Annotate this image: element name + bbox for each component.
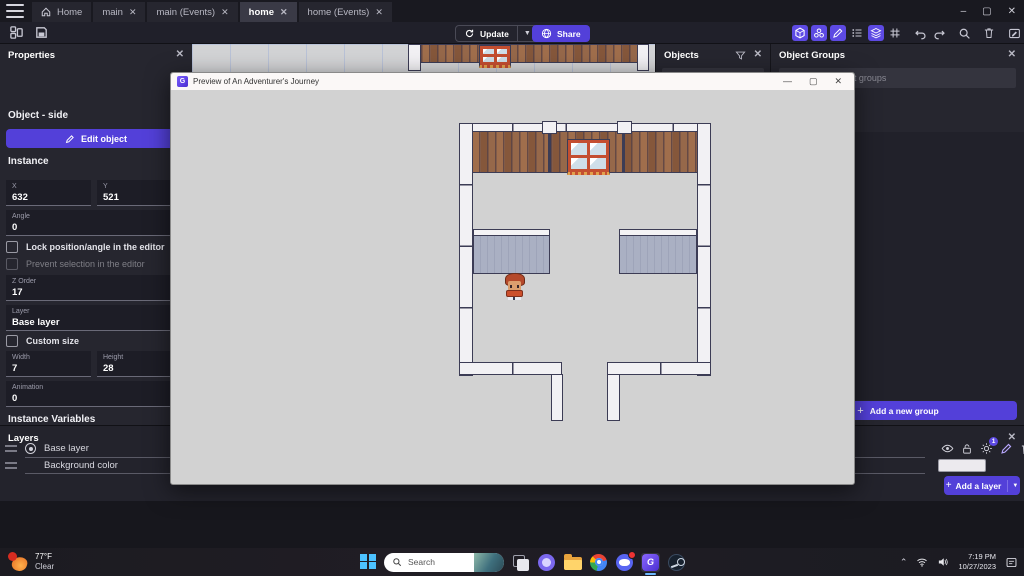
globe-icon (541, 28, 552, 39)
panel-title: Objects (664, 50, 699, 61)
tab-label: Home (57, 7, 82, 18)
tab-home-page[interactable]: Home (32, 2, 91, 22)
effects-badge: 1 (989, 437, 998, 446)
window-sprite (479, 45, 511, 68)
minimize-icon[interactable]: — (783, 76, 792, 87)
panel-title: Object Groups (779, 50, 845, 61)
prevent-selection-checkbox[interactable]: Prevent selection in the editor (6, 258, 188, 270)
layer-actions: 1 (941, 442, 1024, 455)
window-controls: – ▢ ✕ (961, 0, 1016, 22)
tab-home-events[interactable]: home (Events) ✕ (299, 2, 392, 22)
close-icon[interactable]: ✕ (754, 50, 762, 60)
game-table-right (619, 229, 697, 274)
preview-window: G Preview of An Adventurer's Journey — ▢… (170, 72, 855, 485)
chevron-down-icon[interactable]: ▼ (1012, 483, 1018, 489)
maximize-icon[interactable]: ▢ (982, 6, 991, 17)
taskbar-clock[interactable]: 7:19 PM 10/27/2023 (958, 552, 996, 572)
background-color-swatch[interactable] (938, 459, 986, 472)
rename-icon[interactable] (1006, 25, 1022, 41)
layers-toggle-icon[interactable] (868, 25, 884, 41)
grid-icon[interactable] (887, 25, 903, 41)
share-button[interactable]: Share (532, 25, 590, 42)
tab-label: main (102, 7, 123, 18)
edit-layer-pencil-icon[interactable] (1000, 442, 1013, 455)
object-heading: Object - side (8, 110, 68, 121)
visibility-eye-icon[interactable] (941, 442, 954, 455)
tab-main[interactable]: main ✕ (93, 2, 145, 22)
x-field[interactable]: X 632 (6, 180, 91, 206)
game-wall-left (459, 123, 473, 376)
objects-toggle-icon[interactable] (792, 25, 808, 41)
taskbar-app-icon[interactable] (537, 553, 556, 572)
update-button[interactable]: Update ▼ (455, 25, 538, 42)
gdevelop-icon: G (177, 76, 188, 87)
notification-center-icon[interactable] (1005, 556, 1018, 569)
game-door-jamb-right (607, 374, 620, 421)
steam-icon[interactable] (667, 553, 686, 572)
wood-wall (421, 44, 637, 63)
game-table-left (473, 229, 550, 274)
angle-field[interactable]: Angle 0 (6, 210, 186, 236)
update-label: Update (480, 29, 509, 39)
game-wall-bottom-right (607, 362, 711, 375)
game-window-sprite (567, 139, 610, 175)
minimize-icon[interactable]: – (961, 6, 967, 17)
home-icon (41, 7, 51, 17)
checkbox[interactable] (6, 258, 18, 270)
wall-pillar (408, 44, 421, 71)
instances-toggle-icon[interactable] (811, 25, 827, 41)
instance-section-label: Instance (8, 156, 49, 167)
gdevelop-taskbar-icon[interactable]: G (641, 553, 660, 572)
tab-home[interactable]: home ✕ (240, 2, 297, 22)
refresh-icon (464, 28, 475, 39)
tab-main-events[interactable]: main (Events) ✕ (147, 2, 237, 22)
checkbox[interactable] (6, 241, 18, 253)
active-layer-radio[interactable] (25, 443, 36, 454)
search-placeholder: Search (408, 557, 435, 567)
tab-bar: Home main ✕ main (Events) ✕ home ✕ home … (0, 0, 1024, 22)
game-viewport[interactable] (171, 90, 854, 485)
editor-toolbar-icons (792, 25, 1022, 41)
time: 7:19 PM (958, 552, 996, 562)
close-icon[interactable]: ✕ (1008, 6, 1016, 17)
tab-label: home (249, 7, 274, 18)
close-icon[interactable]: ✕ (176, 50, 184, 60)
wifi-icon[interactable] (916, 556, 928, 568)
weather-widget[interactable]: 77°F Clear (8, 552, 54, 573)
properties-list-icon[interactable] (849, 25, 865, 41)
preview-titlebar[interactable]: G Preview of An Adventurer's Journey — ▢… (171, 73, 854, 90)
drag-handle-icon[interactable] (5, 445, 17, 452)
discord-icon[interactable] (615, 553, 634, 572)
lock-position-checkbox[interactable]: Lock position/angle in the editor (6, 241, 188, 253)
delete-layer-trash-icon[interactable] (1020, 443, 1024, 455)
close-icon[interactable]: ✕ (375, 8, 383, 17)
undo-icon[interactable] (912, 25, 928, 41)
lock-icon[interactable] (961, 443, 973, 455)
date: 10/27/2023 (958, 562, 996, 572)
add-layer-button[interactable]: + Add a layer ▼ (944, 476, 1020, 495)
filter-icon[interactable] (735, 50, 746, 61)
instance-variables-label: Instance Variables (8, 414, 95, 425)
menu-icon[interactable] (6, 4, 24, 18)
edit-object-button[interactable]: Edit object (6, 129, 186, 148)
drag-handle-icon[interactable] (5, 462, 17, 469)
preview-window-controls: — ▢ ✕ (783, 76, 848, 87)
properties-panel: Properties ✕ Object - side Edit object I… (0, 44, 192, 425)
game-player-character (504, 273, 526, 300)
share-label: Share (557, 29, 581, 39)
effects-sun-icon[interactable]: 1 (980, 442, 993, 455)
redo-icon[interactable] (931, 25, 947, 41)
maximize-icon[interactable]: ▢ (809, 76, 818, 87)
layer-field[interactable]: Layer Base layer (6, 305, 186, 331)
weather-icon (8, 552, 28, 572)
panel-title: Properties (8, 50, 55, 61)
start-button[interactable] (360, 554, 377, 571)
game-door-jamb-left (551, 374, 563, 421)
close-icon[interactable]: ✕ (280, 8, 288, 17)
save-icon[interactable] (34, 25, 50, 41)
gdevelop-window: Home main ✕ main (Events) ✕ home ✕ home … (0, 0, 1024, 576)
zoom-icon[interactable] (956, 25, 972, 41)
game-wall-right (697, 123, 711, 376)
project-manager-icon[interactable] (9, 25, 25, 41)
weather-temp: 77°F (35, 552, 54, 562)
task-view-icon[interactable] (511, 553, 530, 572)
tray-chevron-icon[interactable]: ⌃ (900, 557, 908, 568)
trash-icon[interactable] (981, 25, 997, 41)
close-icon[interactable]: ✕ (129, 8, 137, 17)
plus-icon: + (946, 480, 952, 491)
file-explorer-icon[interactable] (563, 553, 582, 572)
z-order-field[interactable]: Z Order 17 (6, 275, 186, 301)
chrome-icon[interactable] (589, 553, 608, 572)
game-wall-bottom-left (459, 362, 562, 375)
custom-size-checkbox[interactable]: Custom size (6, 335, 188, 347)
windows-taskbar: 77°F Clear Search G ⌃ 7:19 PM (0, 548, 1024, 576)
weather-condition: Clear (35, 562, 54, 572)
game-wall-joint (542, 121, 557, 134)
layer-row-background[interactable]: Background color (5, 460, 118, 471)
edit-toggle-icon[interactable] (830, 25, 846, 41)
search-icon (392, 557, 402, 567)
layer-name: Background color (44, 460, 118, 471)
close-icon[interactable]: ✕ (221, 8, 229, 17)
tab-label: main (Events) (156, 7, 215, 18)
pencil-icon (65, 134, 75, 144)
plus-icon: + (857, 405, 863, 417)
panel-title: Layers (8, 433, 39, 444)
speaker-icon[interactable] (937, 556, 949, 568)
animation-field[interactable]: Animation 0 (6, 381, 186, 407)
tab-label: home (Events) (308, 7, 370, 18)
toolbar: Update ▼ Share (0, 22, 1024, 44)
close-icon[interactable]: ✕ (1008, 50, 1016, 60)
layer-name: Base layer (44, 443, 89, 454)
taskbar-search[interactable]: Search (384, 553, 504, 572)
width-field[interactable]: Width 7 (6, 351, 91, 377)
close-icon[interactable]: ✕ (834, 76, 842, 87)
wall-pillar (637, 44, 649, 71)
layer-row-base[interactable]: Base layer (5, 443, 89, 454)
checkbox[interactable] (6, 335, 18, 347)
search-highlight-image (474, 553, 504, 572)
preview-title: Preview of An Adventurer's Journey (193, 77, 319, 86)
game-wall-joint (617, 121, 632, 134)
